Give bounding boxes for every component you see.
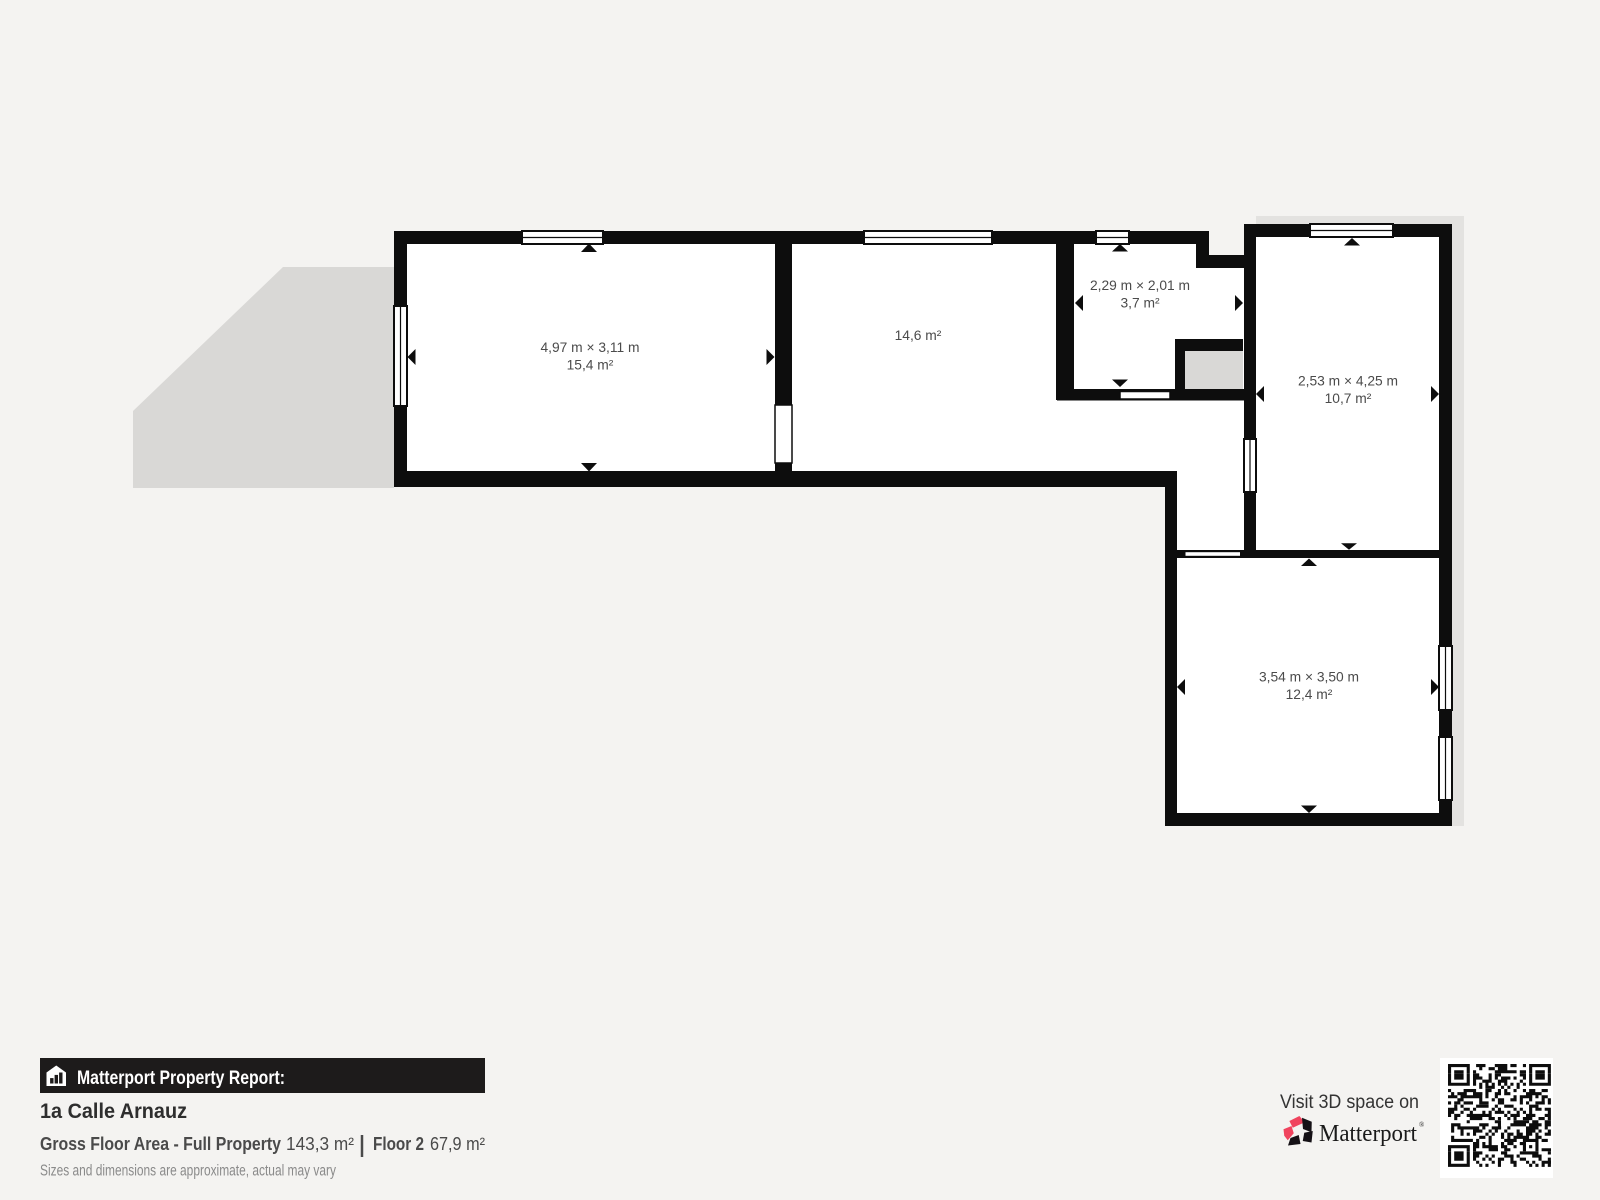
- svg-text:2,53 m × 4,25 m: 2,53 m × 4,25 m: [1298, 374, 1398, 389]
- svg-text:143,3 m²: 143,3 m²: [286, 1134, 354, 1154]
- svg-text:Matterport Property Report:: Matterport Property Report:: [77, 1068, 285, 1089]
- svg-text:10,7 m²: 10,7 m²: [1325, 391, 1372, 406]
- svg-text:Sizes and dimensions are appro: Sizes and dimensions are approximate, ac…: [40, 1163, 336, 1180]
- svg-text:14,6 m²: 14,6 m²: [895, 328, 942, 343]
- svg-text:1a Calle Arnauz: 1a Calle Arnauz: [40, 1099, 187, 1123]
- svg-text:Floor 2: Floor 2: [373, 1134, 424, 1154]
- svg-text:Gross Floor Area - Full Proper: Gross Floor Area - Full Property: [40, 1134, 281, 1154]
- svg-text:Visit 3D space on: Visit 3D space on: [1280, 1092, 1419, 1113]
- svg-text:15,4 m²: 15,4 m²: [567, 358, 614, 373]
- svg-text:Matterport: Matterport: [1319, 1121, 1417, 1147]
- svg-text:®: ®: [1419, 1121, 1425, 1129]
- svg-text:2,29 m × 2,01 m: 2,29 m × 2,01 m: [1090, 278, 1190, 293]
- svg-text:4,97 m × 3,11 m: 4,97 m × 3,11 m: [540, 340, 639, 355]
- svg-text:3,54 m × 3,50 m: 3,54 m × 3,50 m: [1259, 670, 1359, 685]
- svg-text:67,9 m²: 67,9 m²: [430, 1134, 485, 1154]
- svg-text:12,4 m²: 12,4 m²: [1286, 687, 1333, 702]
- svg-text:3,7 m²: 3,7 m²: [1120, 296, 1160, 311]
